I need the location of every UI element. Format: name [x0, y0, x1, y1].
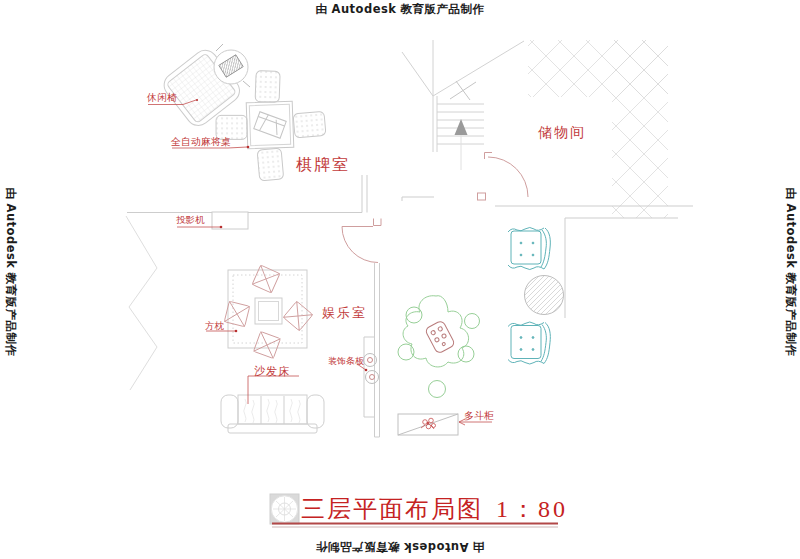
- decor-panel-label: 装饰条板: [328, 357, 364, 366]
- watermark-suffix: 教育版产品制作: [4, 273, 18, 357]
- watermark-suffix: 教育版产品制作: [315, 540, 399, 554]
- projector-label: 投影机: [176, 216, 205, 226]
- watermark-brand: Autodesk: [331, 2, 396, 16]
- sofa-bed: [221, 395, 324, 433]
- mahjong-chair-right: [293, 111, 326, 138]
- drawing-title-text: 三层平面布局图: [301, 496, 483, 522]
- teal-armchair-upper: [508, 228, 550, 270]
- plant-tray: [425, 320, 456, 354]
- teal-armchair-lower: [508, 322, 550, 364]
- watermark-prefix: 由: [784, 187, 798, 199]
- watermark-brand: Autodesk: [403, 540, 468, 554]
- stair-direction-arrow-icon: [455, 119, 468, 135]
- break-line: [126, 216, 157, 390]
- watermark-prefix: 由: [315, 2, 327, 16]
- watermark-brand: Autodesk: [4, 203, 18, 268]
- drawing-title: 三层平面布局图1：80: [301, 493, 568, 525]
- watermark-prefix: 由: [473, 540, 485, 554]
- title-logo-emblem: [270, 494, 299, 524]
- leader-lines: [148, 100, 492, 425]
- watermark-suffix: 教育版产品制作: [401, 2, 485, 16]
- plant: [398, 296, 480, 398]
- storage-room-label: 储物间: [538, 126, 586, 140]
- floor-plan: [0, 0, 800, 559]
- leisure-chair-label: 休闲椅: [147, 93, 177, 103]
- watermark-bottom: 由Autodesk教育版产品制作: [315, 539, 484, 554]
- drawer-cabinet-label: 多斗柜: [464, 411, 494, 421]
- round-tea-table: [525, 276, 564, 315]
- square-pillows: [224, 265, 313, 358]
- watermark-suffix: 教育版产品制作: [784, 273, 798, 357]
- chess-room-label: 棋牌室: [296, 157, 350, 173]
- entertainment-room-label: 娱乐室: [322, 306, 367, 319]
- watermark-right: 由Autodesk教育版产品制作: [783, 187, 798, 356]
- decor-panel-flowers: [364, 354, 379, 384]
- autocad-drawing-sheet: 由Autodesk教育版产品制作 由Autodesk教育版产品制作 由Autod…: [0, 0, 800, 559]
- drawer-cabinet: [398, 414, 458, 435]
- sofa-bed-label: 沙发床: [254, 366, 290, 377]
- entertainment-door: [342, 219, 381, 263]
- storage-door: [478, 153, 529, 201]
- watermark-top: 由Autodesk教育版产品制作: [315, 2, 484, 17]
- mahjong-chair-top: [255, 71, 280, 103]
- drawing-scale: 1：80: [496, 496, 568, 522]
- staircase: [402, 40, 524, 170]
- watermark-brand: Autodesk: [784, 203, 798, 268]
- square-pillow-label: 方枕: [205, 322, 224, 332]
- mahjong-table-label: 全自动麻将桌: [171, 137, 231, 147]
- watermark-left: 由Autodesk教育版产品制作: [3, 187, 18, 356]
- projector-box: [212, 212, 248, 229]
- mahjong-chair-bottom: [257, 148, 284, 181]
- watermark-prefix: 由: [4, 187, 18, 199]
